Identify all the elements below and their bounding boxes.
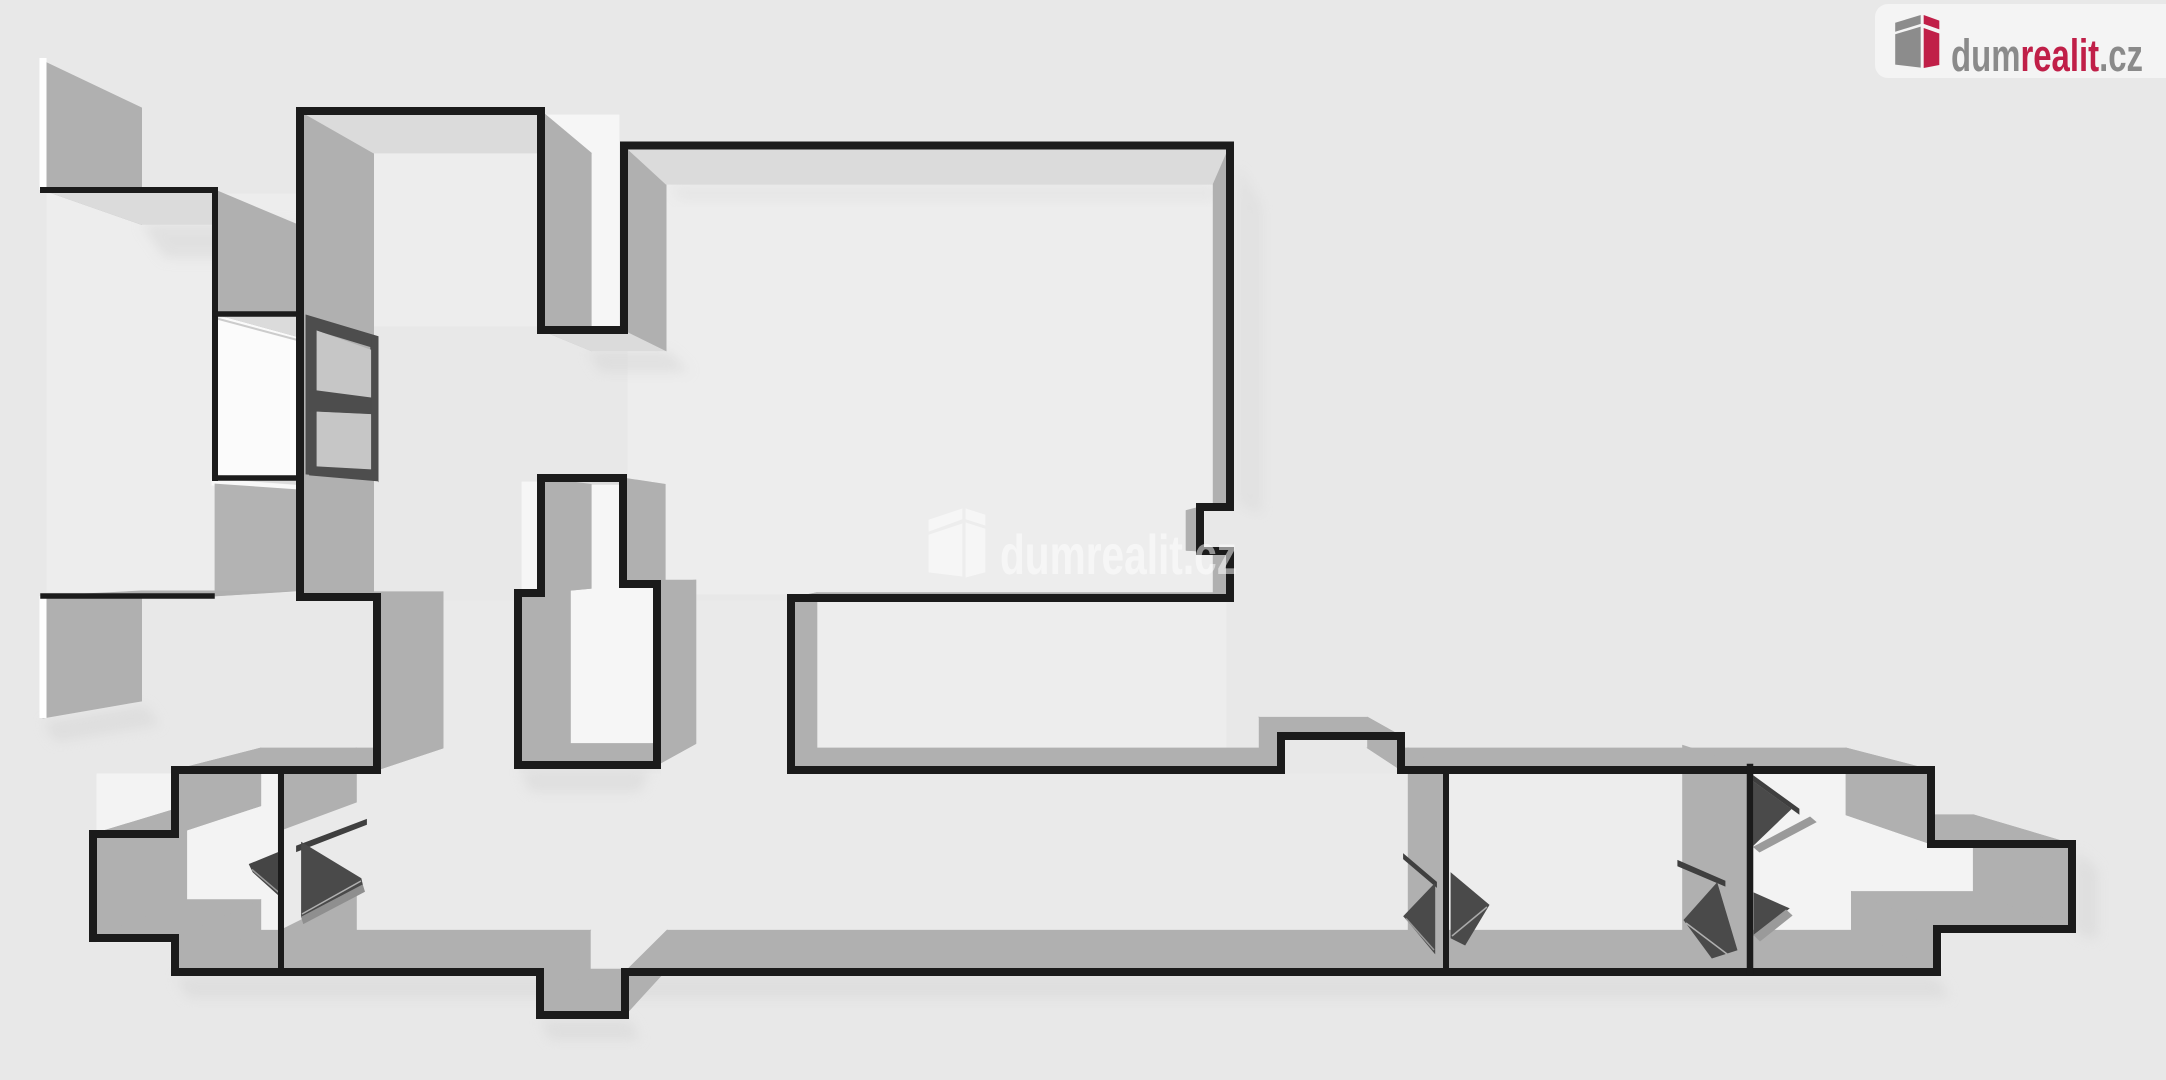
- svg-text:dumrealit.cz: dumrealit.cz: [1951, 30, 2143, 81]
- svg-text:dumrealit.cz: dumrealit.cz: [1000, 523, 1237, 586]
